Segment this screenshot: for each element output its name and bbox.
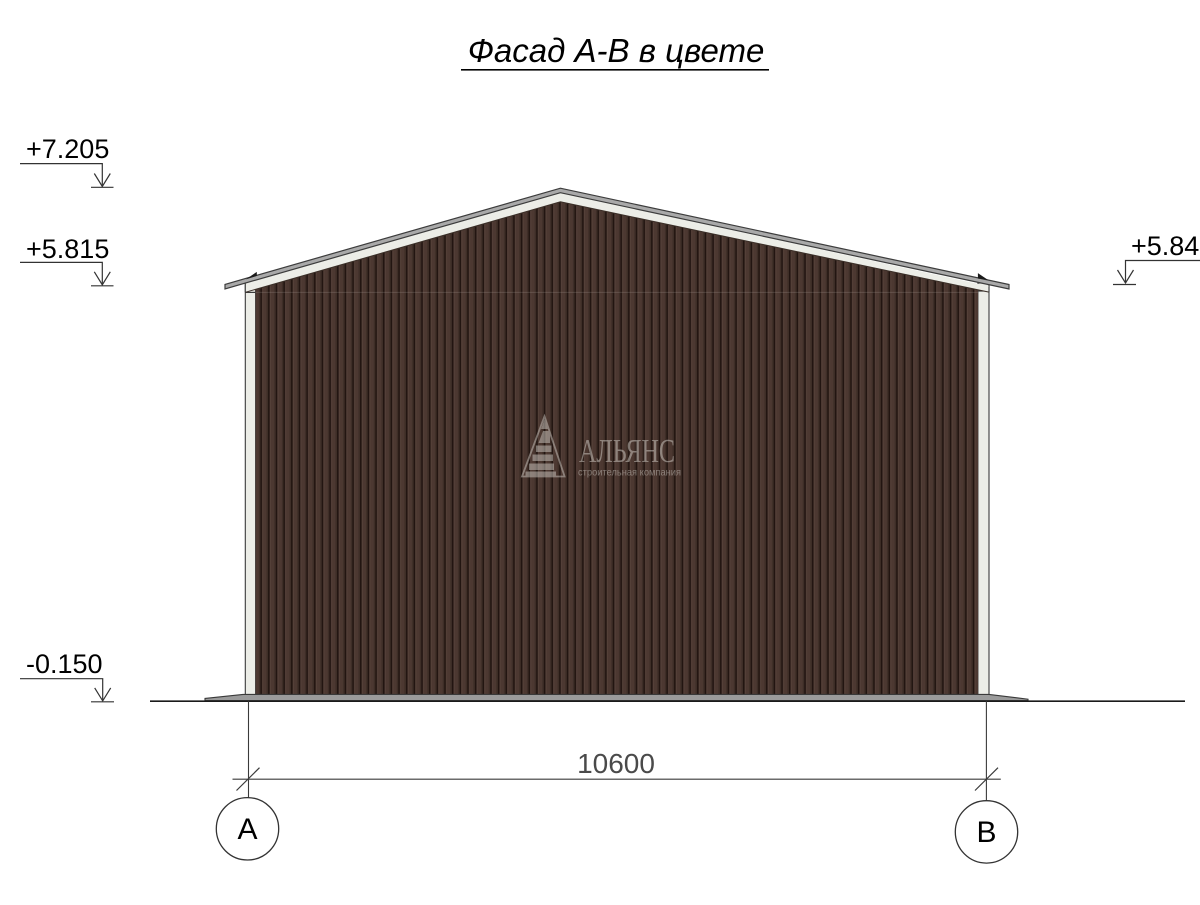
svg-text:Фасад А-В в цвете: Фасад А-В в цвете bbox=[468, 32, 765, 69]
svg-text:АЛЬЯНС: АЛЬЯНС bbox=[579, 433, 675, 470]
svg-text:А: А bbox=[237, 813, 257, 846]
svg-text:-0.150: -0.150 bbox=[26, 649, 103, 679]
svg-text:+7.205: +7.205 bbox=[26, 134, 109, 164]
svg-text:В: В bbox=[976, 816, 996, 849]
svg-text:строительная компания: строительная компания bbox=[578, 467, 681, 479]
svg-text:10600: 10600 bbox=[577, 748, 655, 779]
svg-text:+5.815: +5.815 bbox=[26, 234, 109, 264]
svg-text:+5.840: +5.840 bbox=[1131, 231, 1200, 261]
